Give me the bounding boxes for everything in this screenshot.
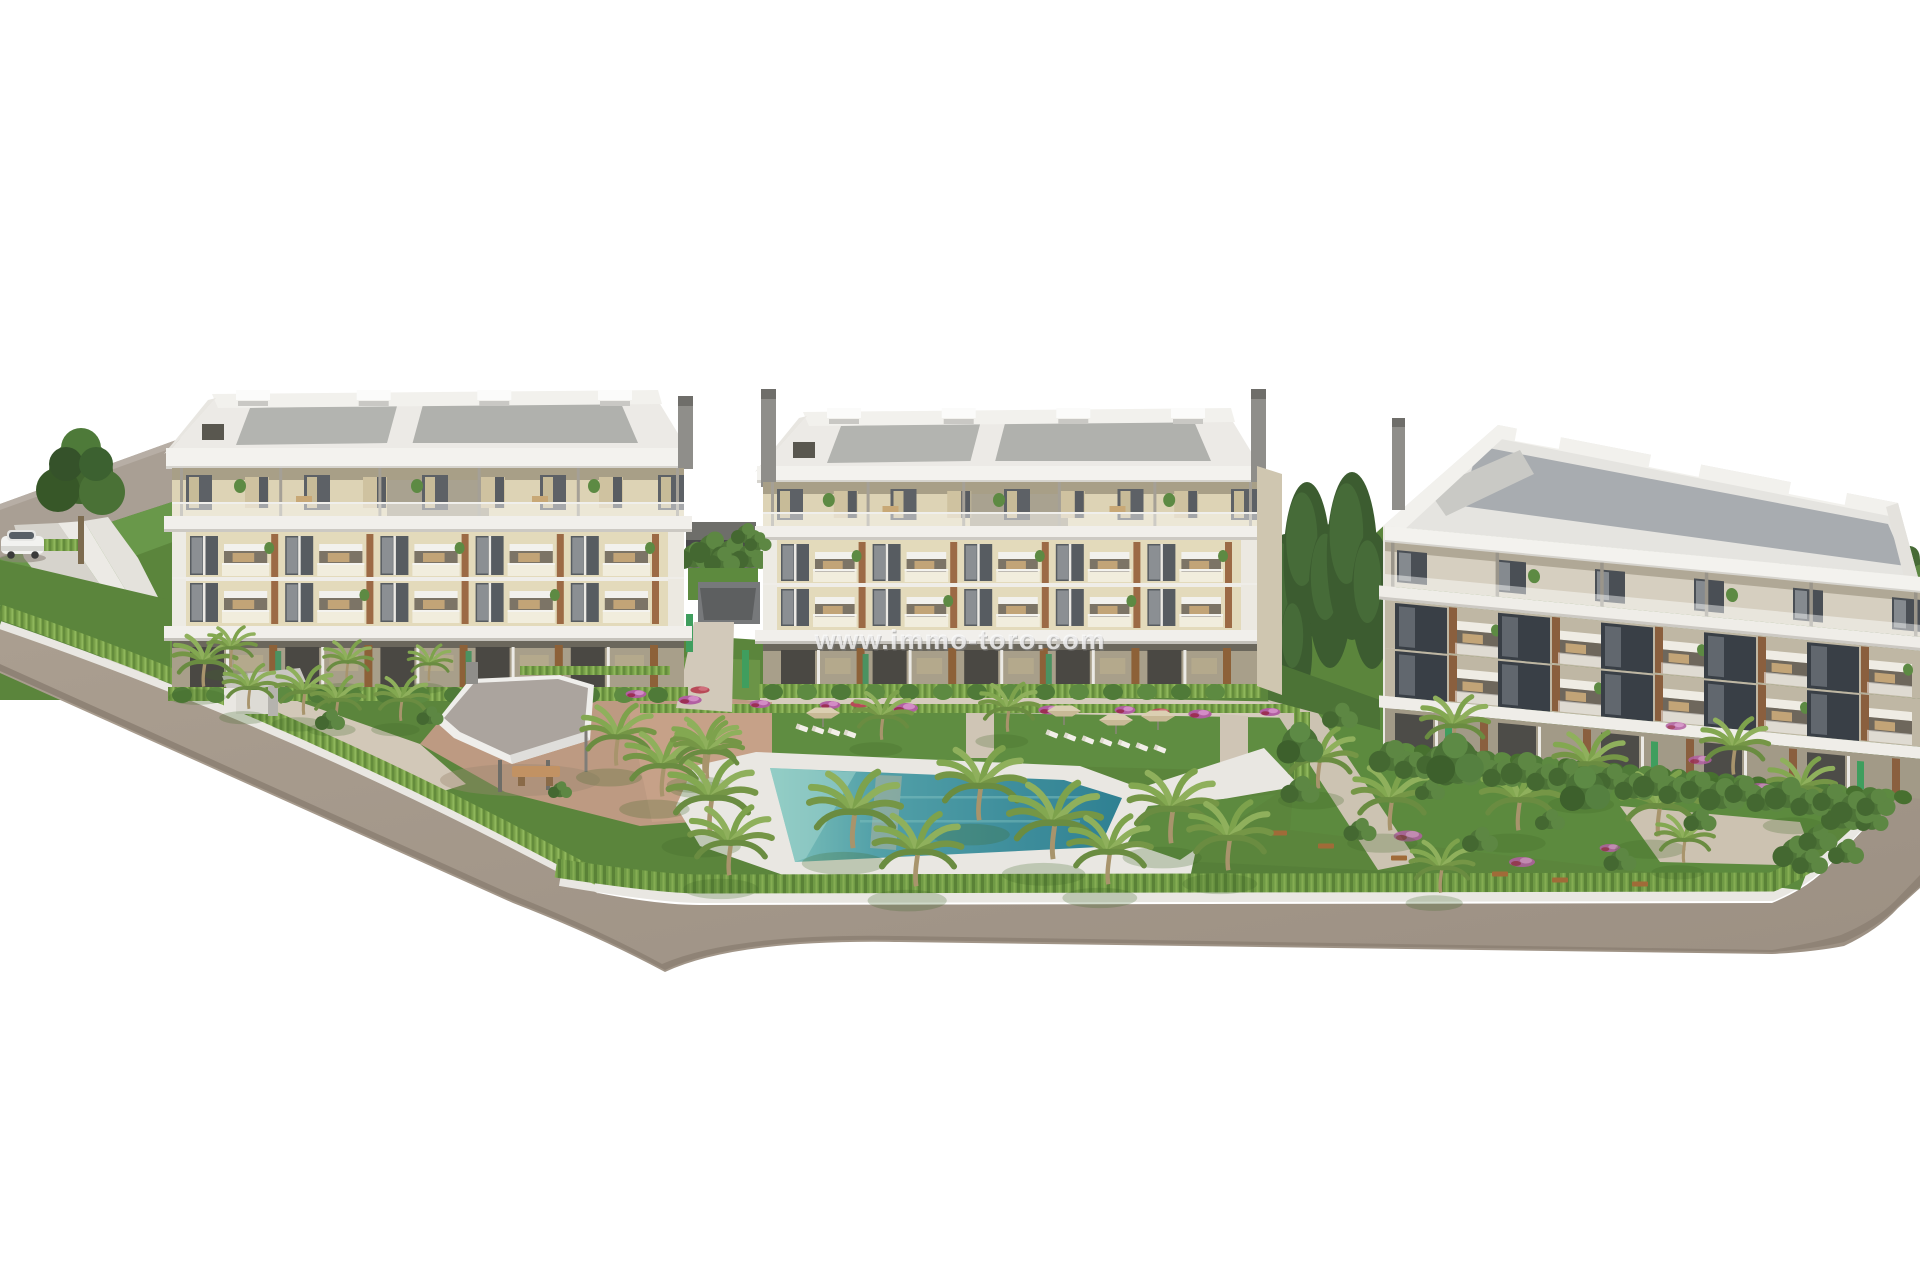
svg-text:www.immo-toro.com: www.immo-toro.com xyxy=(813,624,1105,655)
